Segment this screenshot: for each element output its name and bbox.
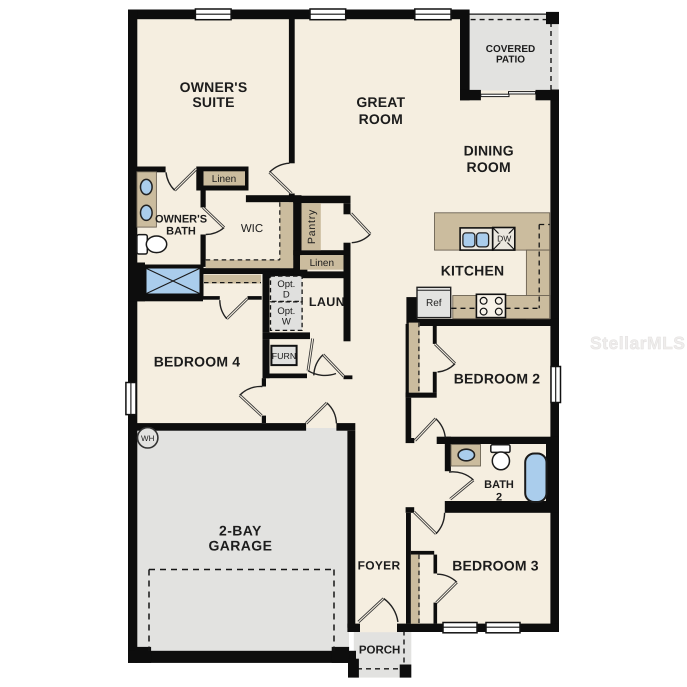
- svg-text:OWNER'S: OWNER'S: [155, 214, 207, 226]
- svg-text:KITCHEN: KITCHEN: [441, 263, 505, 279]
- svg-text:LAUN: LAUN: [309, 295, 345, 309]
- svg-text:DINING: DINING: [464, 143, 514, 159]
- svg-text:Pantry: Pantry: [306, 209, 318, 244]
- svg-text:SUITE: SUITE: [192, 94, 234, 110]
- svg-text:GREAT: GREAT: [356, 94, 405, 110]
- svg-text:BATH: BATH: [484, 479, 514, 491]
- svg-text:FOYER: FOYER: [358, 559, 401, 573]
- svg-text:PORCH: PORCH: [359, 645, 401, 657]
- svg-text:WH: WH: [141, 434, 155, 443]
- svg-text:WIC: WIC: [241, 223, 263, 235]
- svg-text:2-BAY: 2-BAY: [219, 523, 262, 539]
- svg-text:ROOM: ROOM: [467, 159, 511, 175]
- svg-text:BEDROOM 2: BEDROOM 2: [454, 371, 541, 387]
- svg-text:COVERED: COVERED: [486, 44, 535, 55]
- svg-text:Opt.: Opt.: [277, 279, 295, 290]
- svg-text:GARAGE: GARAGE: [208, 538, 272, 554]
- svg-text:BEDROOM 3: BEDROOM 3: [452, 558, 539, 574]
- svg-text:OWNER'S: OWNER'S: [180, 79, 248, 95]
- svg-text:BATH: BATH: [166, 226, 196, 238]
- svg-text:ROOM: ROOM: [359, 111, 403, 127]
- svg-text:Linen: Linen: [310, 258, 334, 269]
- svg-text:Linen: Linen: [212, 174, 236, 185]
- svg-text:D: D: [283, 290, 290, 301]
- svg-text:FURN: FURN: [272, 351, 296, 361]
- svg-text:Opt.: Opt.: [277, 306, 295, 317]
- svg-text:StellarMLS: StellarMLS: [590, 333, 685, 353]
- svg-text:DW: DW: [497, 234, 511, 244]
- svg-text:BEDROOM 4: BEDROOM 4: [154, 354, 241, 370]
- svg-text:PATIO: PATIO: [496, 55, 525, 66]
- svg-text:W: W: [282, 317, 291, 328]
- svg-text:Ref: Ref: [426, 298, 442, 309]
- svg-text:2: 2: [496, 492, 502, 504]
